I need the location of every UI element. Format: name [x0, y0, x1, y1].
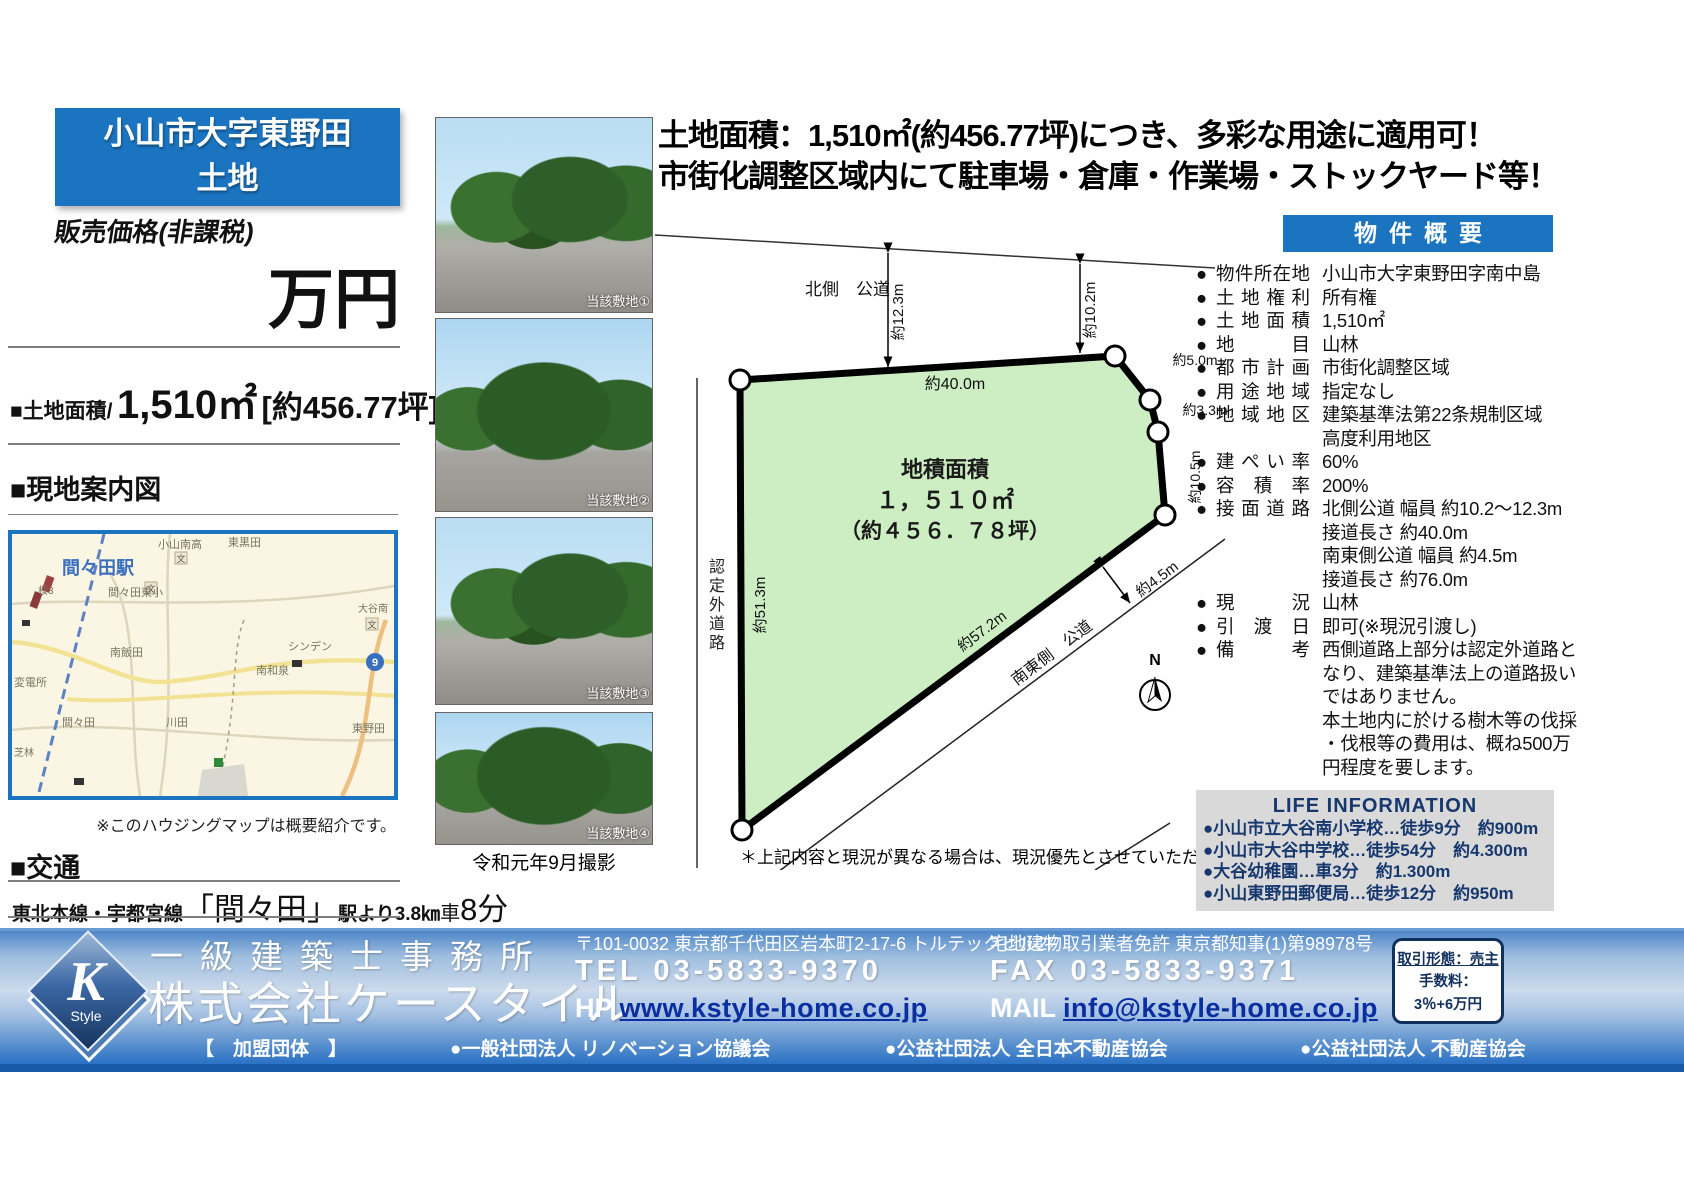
map-note: ※このハウジングマップは概要紹介です。: [0, 812, 396, 836]
west-road-label: 認定外道路: [702, 558, 726, 653]
map-station-label: 間々田駅: [62, 558, 135, 578]
plot-area-tsubo: （約４５６．７８坪）: [840, 519, 1050, 543]
north-road-edge: [655, 235, 1215, 268]
deal-type: 取引形態：売主: [1395, 949, 1501, 971]
logo-sub-label: Style: [36, 1008, 136, 1024]
life-item: ●小山市大谷中学校…徒歩54分 約4.300m: [1203, 840, 1547, 862]
plot-diagram: 北側 公道 約12.3m 約10.2m 約40.0m 約5.0m 約3.3m 約…: [655, 215, 1270, 870]
company-name: 株式会社ケースタイル: [148, 968, 636, 1034]
headline: 土地面積：1,510㎡(約456.77坪)につき、多彩な用途に適用可！ 市街化調…: [658, 116, 1563, 198]
north-road-label: 北側 公道: [805, 280, 890, 299]
membership-item: ●一般社団法人 リノベーション協議会: [450, 1034, 770, 1061]
school-icon: 文: [366, 618, 378, 630]
price-unit: 万円: [90, 246, 400, 342]
map-building-icon: [292, 660, 302, 667]
summary-row: ●容積率200%: [1196, 474, 1576, 498]
summary-row: ●現況山林: [1196, 591, 1576, 615]
map-label: 変電所: [14, 675, 47, 689]
map-label: 大谷南: [358, 602, 388, 615]
vertex-marker: [1140, 390, 1160, 410]
divider: [8, 346, 400, 348]
dim-51-3: 約51.3m: [752, 577, 769, 634]
membership-item: ●公益社団法人 全日本不動産協会: [885, 1034, 1168, 1061]
summary-row: ●都市計画市街化調整区域: [1196, 356, 1576, 380]
bullet-icon: ●: [1196, 262, 1216, 286]
map-label: 東野田: [352, 722, 385, 735]
logo-letter: K: [36, 950, 136, 1014]
transit-line: 東北本線・宇都宮線: [12, 904, 183, 925]
map-label: 東黒田: [228, 536, 261, 549]
property-title: 小山市大字東野田 土地: [55, 108, 400, 206]
life-information-title: LIFE INFORMATION: [1203, 795, 1547, 818]
price-label: 販売価格(非課税): [55, 212, 254, 249]
fee-label: 手数料：: [1395, 971, 1501, 993]
photo-caption: 当該敷地②: [586, 490, 650, 509]
hp-label: HP: [575, 993, 612, 1023]
life-information: LIFE INFORMATION ●小山市立大谷南小学校…徒歩9分 約900m …: [1196, 790, 1554, 911]
bullet-icon: ●: [1196, 380, 1216, 404]
life-item: ●大谷幼稚園…車3分 約1.300m: [1203, 861, 1547, 883]
summary-row: ●地目山林: [1196, 333, 1576, 357]
summary-row: ●接面道路北側公道 幅員 約10.2〜12.3m 接道長さ 約40.0m 南東側…: [1196, 497, 1576, 591]
website-link[interactable]: www.kstyle-home.co.jp: [620, 993, 928, 1023]
summary-row: ●備考西側道路上部分は認定外道路と なり、建築基準法上の道路扱い ではありません…: [1196, 638, 1576, 779]
summary-row: ●用途地域指定なし: [1196, 380, 1576, 404]
vertex-marker: [1155, 505, 1175, 525]
vertex-marker: [730, 370, 750, 390]
photo-caption: 当該敷地③: [586, 683, 650, 702]
dim-40-0: 約40.0m: [925, 375, 985, 393]
map-building-icon: [22, 620, 30, 626]
headline-line1: 土地面積：1,510㎡(約456.77坪)につき、多彩な用途に適用可！: [658, 116, 1563, 157]
transit-distance: 駅より3.8㎞: [338, 904, 440, 925]
summary-row: ●引渡日即可(※現況引渡し): [1196, 615, 1576, 639]
map-label: 南和泉: [256, 663, 289, 677]
photo-caption: 当該敷地①: [586, 291, 650, 310]
divider: [8, 443, 400, 445]
map-site-marker: [214, 758, 223, 767]
route-badge-number: 9: [372, 657, 378, 669]
dim-10-2: 約10.2m: [1082, 282, 1099, 339]
vertex-marker: [732, 820, 752, 840]
summary-row: ●建ぺい率60%: [1196, 450, 1576, 474]
site-photo-4: 当該敷地④: [435, 712, 653, 845]
dim-4-5: 約4.5m: [1133, 558, 1182, 601]
hp-row: HP www.kstyle-home.co.jp: [575, 993, 928, 1024]
map-label: 桜3: [38, 584, 54, 597]
summary-list: ●物件所在地小山市大字東野田字南中島 ●土地権利所有権 ●土地面積1,510㎡ …: [1196, 262, 1576, 779]
transit-info: 東北本線・宇都宮線「間々田」駅より3.8㎞車8分: [12, 884, 412, 929]
summary-header: 物件概要: [1283, 215, 1553, 252]
svg-text:N: N: [1149, 652, 1161, 669]
transit-car-time: 8分: [460, 892, 508, 927]
site-photo-2: 当該敷地②: [435, 318, 653, 512]
plot-area-value: １，５１０㎡: [876, 487, 1014, 513]
fax-row: FAX 03-5833-9371: [990, 955, 1299, 988]
bullet-icon: ●: [1196, 309, 1216, 333]
mail-label: MAIL: [990, 993, 1056, 1023]
site-photo-3: 当該敷地③: [435, 517, 653, 705]
company-license: 宅地建物取引業者免許 東京都知事(1)第98978号: [990, 930, 1373, 956]
school-icon: 文: [175, 552, 187, 564]
photo-date-note: 令和元年9月撮影: [435, 848, 653, 875]
headline-line2: 市街化調整区域内にて駐車場・倉庫・作業場・ストックヤード等！: [658, 157, 1563, 198]
membership-label: 【 加盟団体 】: [195, 1034, 347, 1061]
tel-label: TEL: [575, 955, 641, 987]
flyer-page: 小山市大字東野田 土地 販売価格(非課税) 万円 ■土地面積/ 1,510㎡ […: [0, 0, 1684, 1191]
photo-caption: 当該敷地④: [586, 823, 650, 842]
property-title-line2: 土地: [55, 157, 400, 202]
mail-row: MAIL info@kstyle-home.co.jp: [990, 993, 1378, 1024]
dim-arrow-4-5: [1103, 567, 1130, 603]
email-link[interactable]: info@kstyle-home.co.jp: [1063, 993, 1378, 1023]
tel-number: 03-5833-9370: [653, 955, 882, 987]
map-label: 南飯田: [110, 645, 143, 659]
site-photo-1: 当該敷地①: [435, 117, 653, 313]
vertex-marker: [1105, 346, 1125, 366]
company-logo: K Style: [36, 934, 136, 1062]
fax-label: FAX: [990, 955, 1058, 987]
land-area-value: 1,510㎡: [117, 383, 257, 427]
bullet-icon: ●: [1196, 286, 1216, 310]
map-label: 芝林: [14, 746, 34, 759]
bullet-icon: ●: [1196, 615, 1216, 639]
fee-value: 3％+6万円: [1395, 994, 1501, 1016]
svg-text:文: 文: [176, 553, 185, 564]
dim-12-3: 約12.3m: [890, 284, 907, 341]
map-label: 間々田東小: [108, 586, 163, 599]
diagram-disclaimer: ＊上記内容と現況が異なる場合は、現況優先とさせていただきます。: [740, 843, 1265, 868]
life-item: ●小山市立大谷南小学校…徒歩9分 約900m: [1203, 818, 1547, 840]
land-polygon: [740, 356, 1165, 830]
map-label: 小山南高: [158, 537, 202, 551]
bullet-icon: ●: [1196, 638, 1216, 779]
map-label: 間々田: [62, 716, 95, 729]
bullet-icon: ●: [1196, 356, 1216, 380]
transit-station: 「間々田」: [183, 892, 338, 927]
se-road-label: 南東側 公道: [1008, 617, 1096, 689]
footer-bottom-edge: [0, 1064, 1684, 1072]
bullet-icon: ●: [1196, 450, 1216, 474]
divider: [8, 514, 398, 515]
map-label: シンデン: [288, 639, 332, 653]
map-canvas: 文 文 文 9 間々田駅 小山南高 東黒田 間々田東小 南飯田 シンデン 南和泉…: [12, 534, 394, 796]
map-building-icon: [74, 778, 84, 785]
summary-row: ●土地権利所有権: [1196, 286, 1576, 310]
summary-row: ●地域地区建築基準法第22条規制区域 高度利用地区: [1196, 403, 1576, 450]
divider: [8, 880, 400, 882]
svg-text:文: 文: [367, 619, 376, 630]
tel-row: TEL 03-5833-9370: [575, 955, 882, 988]
land-area-prefix: ■土地面積/: [10, 400, 113, 423]
map-heading: ■現地案内図: [10, 468, 161, 507]
land-area-tsubo: [約456.77坪]: [262, 390, 439, 425]
membership-item: ●公益社団法人 不動産協会: [1300, 1034, 1526, 1061]
life-item: ●小山東野田郵便局…徒歩12分 約950m: [1203, 883, 1547, 905]
compass-icon: N: [1140, 652, 1170, 710]
bullet-icon: ●: [1196, 497, 1216, 591]
bullet-icon: ●: [1196, 591, 1216, 615]
company-address: 〒101-0032 東京都千代田区岩本町2-17-6 トルテックビル2F: [575, 930, 1058, 956]
fax-number: 03-5833-9371: [1070, 955, 1299, 987]
bullet-icon: ●: [1196, 333, 1216, 357]
summary-row: ●土地面積1,510㎡: [1196, 309, 1576, 333]
plot-area-label: 地積面積: [901, 457, 990, 482]
property-title-line1: 小山市大字東野田: [55, 112, 400, 157]
bullet-icon: ●: [1196, 474, 1216, 498]
divider: [8, 916, 400, 918]
land-area-row: ■土地面積/ 1,510㎡ [約456.77坪]: [10, 372, 402, 430]
deal-type-box: 取引形態：売主 手数料： 3％+6万円: [1392, 938, 1504, 1024]
vertex-marker: [1148, 422, 1168, 442]
location-map: 文 文 文 9 間々田駅 小山南高 東黒田 間々田東小 南飯田 シンデン 南和泉…: [8, 530, 398, 800]
summary-row: ●物件所在地小山市大字東野田字南中島: [1196, 262, 1576, 286]
map-label: 川田: [166, 717, 188, 729]
transit-car-prefix: 車: [440, 903, 460, 925]
bullet-icon: ●: [1196, 403, 1216, 450]
